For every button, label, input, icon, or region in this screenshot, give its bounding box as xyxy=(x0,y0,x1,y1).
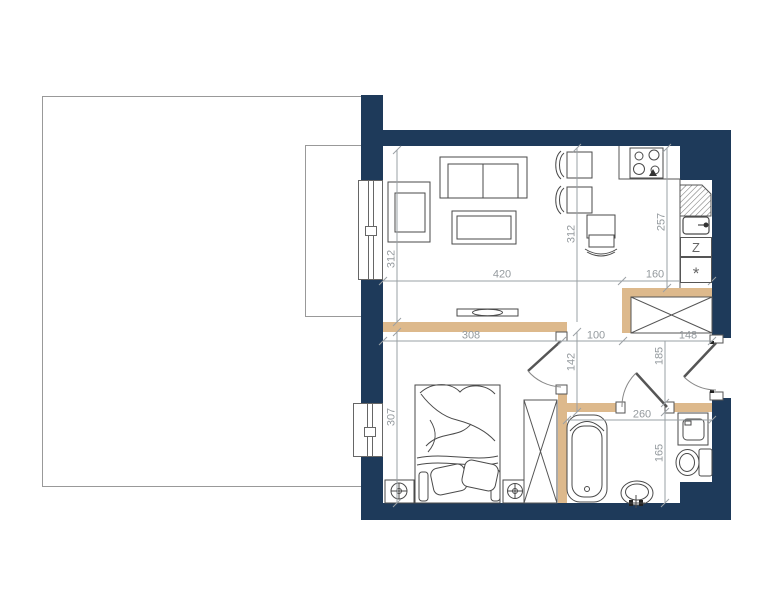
fridge-label: * xyxy=(693,257,700,284)
dim-kitchen-width: 160 xyxy=(646,270,664,281)
dim-bedroom-height: 307 xyxy=(387,408,398,426)
fridge-box: * xyxy=(680,257,712,283)
dim-hall-width: 100 xyxy=(587,331,605,342)
dishwasher-box: Z xyxy=(680,237,712,257)
bedroom-wardrobe xyxy=(524,400,557,503)
bathroom-sink xyxy=(621,481,653,508)
stove-icon xyxy=(630,148,663,178)
kitchen-sink xyxy=(683,217,709,234)
nightstand-right xyxy=(503,480,527,503)
entrance-door xyxy=(684,335,723,400)
dim-hall-height-right: 185 xyxy=(655,347,666,365)
tv-console xyxy=(457,309,518,316)
armchair xyxy=(388,182,430,242)
dim-kitchen-height: 257 xyxy=(657,213,668,231)
kitchen-drainer xyxy=(680,185,711,216)
dim-bedroom-width: 308 xyxy=(462,331,480,342)
dishwasher-label: Z xyxy=(692,240,700,255)
bed xyxy=(415,385,500,503)
hall-wardrobe xyxy=(631,297,712,333)
washing-machine xyxy=(678,413,708,445)
dim-hall-height-left: 142 xyxy=(567,353,578,371)
dining-chair-1 xyxy=(556,151,592,179)
dining-chair-3 xyxy=(585,235,617,256)
bathtub xyxy=(567,415,607,502)
dining-chair-2 xyxy=(556,186,592,214)
nightstand-left xyxy=(385,480,414,503)
coffee-table xyxy=(452,211,516,244)
dim-bathroom-height: 165 xyxy=(655,444,666,462)
sofa xyxy=(440,157,527,198)
floor-plan: Z * 420 160 312 312 257 308 100 148 142 … xyxy=(0,0,768,615)
dim-closet-width: 148 xyxy=(679,331,697,342)
dim-living-height: 312 xyxy=(387,250,398,268)
dim-bathroom-width: 260 xyxy=(633,410,651,421)
toilet xyxy=(676,449,712,476)
dim-living-width: 420 xyxy=(493,270,511,281)
dim-dining-height: 312 xyxy=(567,225,578,243)
furniture-layer xyxy=(0,0,768,615)
